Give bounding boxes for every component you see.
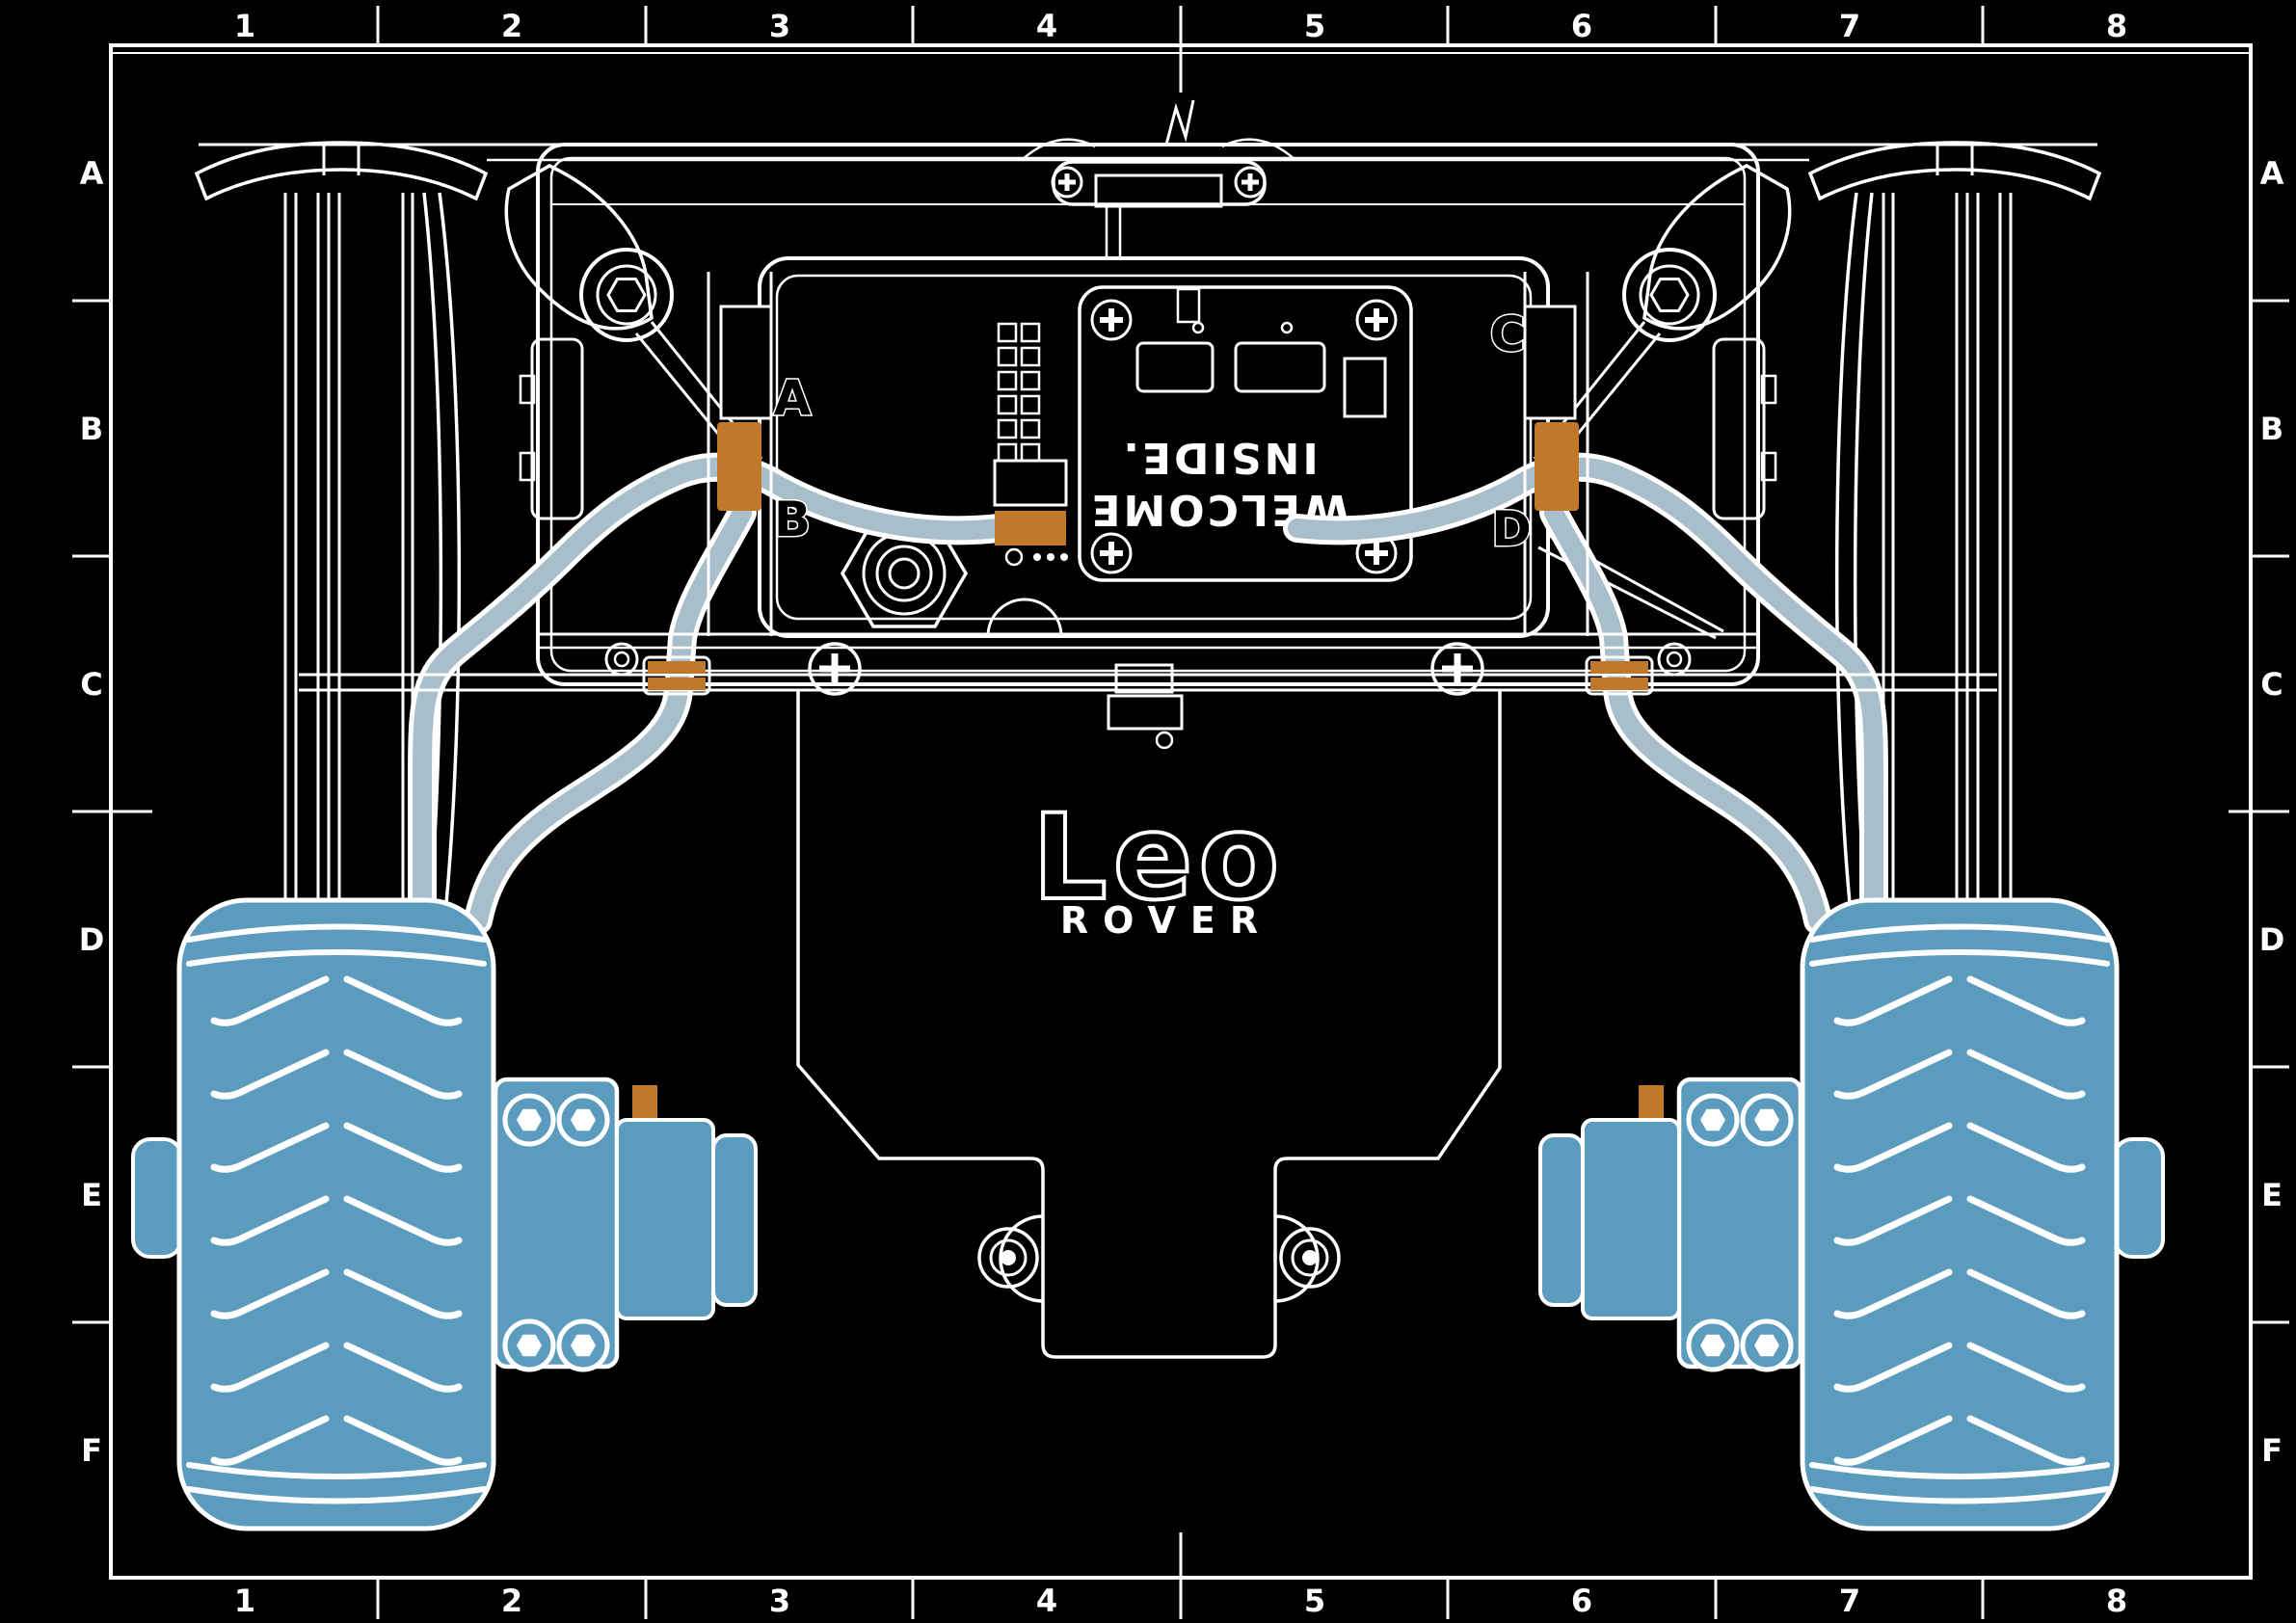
motor-connector-d-orange	[1535, 422, 1579, 511]
camera-screw-right	[1236, 168, 1265, 197]
grid-row-label: E	[81, 1177, 102, 1213]
grid-row-label: D	[2259, 921, 2285, 958]
grid-col-label: 1	[234, 1583, 255, 1619]
motor-connector-b-orange	[717, 422, 761, 511]
camera-bracket	[1053, 162, 1265, 258]
grid-row-label: F	[81, 1432, 102, 1469]
motor-connector-a-housing	[721, 306, 771, 418]
skid-bolt-right	[1275, 1216, 1339, 1301]
motor-assembly-right	[1540, 1079, 1801, 1370]
leo-rover-logo: Leo ROVER	[1032, 789, 1285, 942]
grid-col-label: 7	[1839, 8, 1860, 44]
grid-col-label: 5	[1304, 1583, 1325, 1619]
grid-col-label: 2	[501, 1583, 522, 1619]
ethernet-port	[1345, 359, 1385, 416]
front-wheel-left	[197, 143, 486, 914]
axle-hub-right	[2115, 1139, 2163, 1257]
assembly-drawing: 1 2 3 4 5 6 7 8 1 2 3 4 5 6 7 8 A B C D …	[0, 0, 2296, 1623]
motor-body	[1583, 1120, 1679, 1318]
rear-wheel-right	[1802, 900, 2163, 1529]
grid-row-label: C	[80, 666, 102, 703]
motor-assembly-left	[495, 1079, 756, 1370]
camera-connector	[1178, 289, 1199, 322]
welcome-line-2: INSIDE.	[1120, 433, 1319, 482]
skid-bolt-left	[979, 1216, 1043, 1301]
cable-right-inner	[1554, 513, 1818, 920]
rear-wheel-left	[133, 900, 494, 1529]
body-top-rail	[199, 100, 2097, 160]
grid-col-label: 8	[2106, 1583, 2127, 1619]
bearing-hex-nut	[1651, 279, 1688, 311]
camera-screw-left	[1053, 168, 1081, 197]
grid-col-label: 5	[1304, 8, 1325, 44]
grid-row-label: B	[80, 411, 103, 447]
grid-col-label: 7	[1839, 1583, 1860, 1619]
grid-col-label: 1	[234, 8, 255, 44]
axle-hub-left	[133, 1139, 181, 1257]
connector-label-c: C	[1490, 306, 1526, 362]
grid-row-label: D	[79, 921, 105, 958]
grid-col-label: 4	[1036, 1583, 1057, 1619]
logo-text-sub: ROVER	[1060, 899, 1272, 942]
motor-connector-c-housing	[1525, 306, 1575, 418]
break-mark	[1166, 100, 1193, 145]
bearing-hex-nut	[608, 279, 645, 311]
grid-col-label: 2	[501, 8, 522, 44]
middle-connector-orange	[995, 511, 1066, 545]
ebox-screw-right	[1432, 644, 1482, 694]
grid-ticks-right	[2229, 301, 2289, 1322]
grid-col-label: 8	[2106, 8, 2127, 44]
middle-connector-housing	[995, 461, 1066, 505]
grid-col-label: 6	[1571, 8, 1592, 44]
grid-row-label: E	[2261, 1177, 2283, 1213]
grid-col-label: 3	[769, 1583, 790, 1619]
grid-col-label: 3	[769, 8, 790, 44]
cable-left-inner	[478, 513, 742, 920]
chassis-rails	[299, 634, 1997, 748]
pcb-screw	[1092, 301, 1131, 339]
motor-connector-right	[1639, 1085, 1664, 1122]
grid-col-label: 4	[1036, 8, 1057, 44]
pcb-screw	[1357, 301, 1396, 339]
motor-connector-left	[632, 1085, 657, 1122]
grid-ticks-top	[378, 6, 1983, 93]
connector-label-d: D	[1491, 501, 1532, 557]
gpio-header	[999, 324, 1039, 462]
under-rail-fitting	[1108, 665, 1182, 748]
connector-label-a: A	[774, 370, 812, 426]
grid-col-label: 6	[1571, 1583, 1592, 1619]
gearbox	[1540, 1135, 1583, 1305]
skid-plate: Leo ROVER	[798, 690, 1500, 1357]
drawing-sheet: 1 2 3 4 5 6 7 8 1 2 3 4 5 6 7 8 A B C D …	[0, 0, 2296, 1623]
pcb-screw	[1092, 534, 1131, 572]
grid-row-label: B	[2260, 411, 2283, 447]
motor-body	[617, 1120, 713, 1318]
grid-row-label: A	[2260, 155, 2284, 192]
hdmi-port	[1236, 343, 1324, 391]
front-wheel-right	[1810, 143, 2099, 914]
grid-row-label: A	[80, 155, 104, 192]
usb-port	[1137, 343, 1213, 391]
gearbox	[713, 1135, 756, 1305]
grid-row-label: F	[2261, 1432, 2283, 1469]
connector-label-b: B	[774, 492, 811, 547]
grid-row-label: C	[2260, 666, 2283, 703]
ebox-screw-left	[810, 644, 860, 694]
